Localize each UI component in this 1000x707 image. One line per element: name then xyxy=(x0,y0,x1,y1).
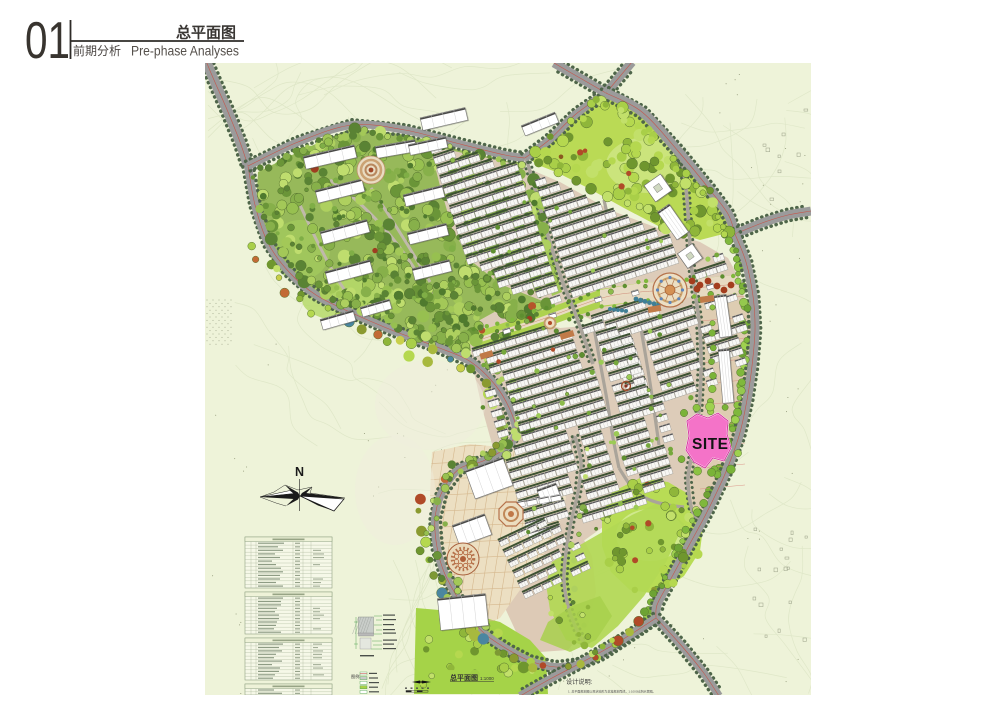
svg-text:SITE: SITE xyxy=(692,436,728,453)
svg-text:设计说明:: 设计说明: xyxy=(566,678,593,686)
svg-text:总平面图: 总平面图 xyxy=(450,673,478,682)
svg-text:图例:: 图例: xyxy=(351,673,361,680)
svg-text:N: N xyxy=(295,465,304,479)
svg-text:总平面图: 总平面图 xyxy=(176,24,236,42)
svg-text:1. 总平面规划图以现状地形为基准规划而成，1:1000比例: 1. 总平面规划图以现状地形为基准规划而成，1:1000比例示意图。 xyxy=(568,689,656,694)
svg-text:Pre-phase Analyses: Pre-phase Analyses xyxy=(131,43,239,59)
svg-text:1:1000: 1:1000 xyxy=(480,676,494,681)
svg-text:前期分析: 前期分析 xyxy=(73,43,121,58)
svg-text:01: 01 xyxy=(25,12,70,70)
